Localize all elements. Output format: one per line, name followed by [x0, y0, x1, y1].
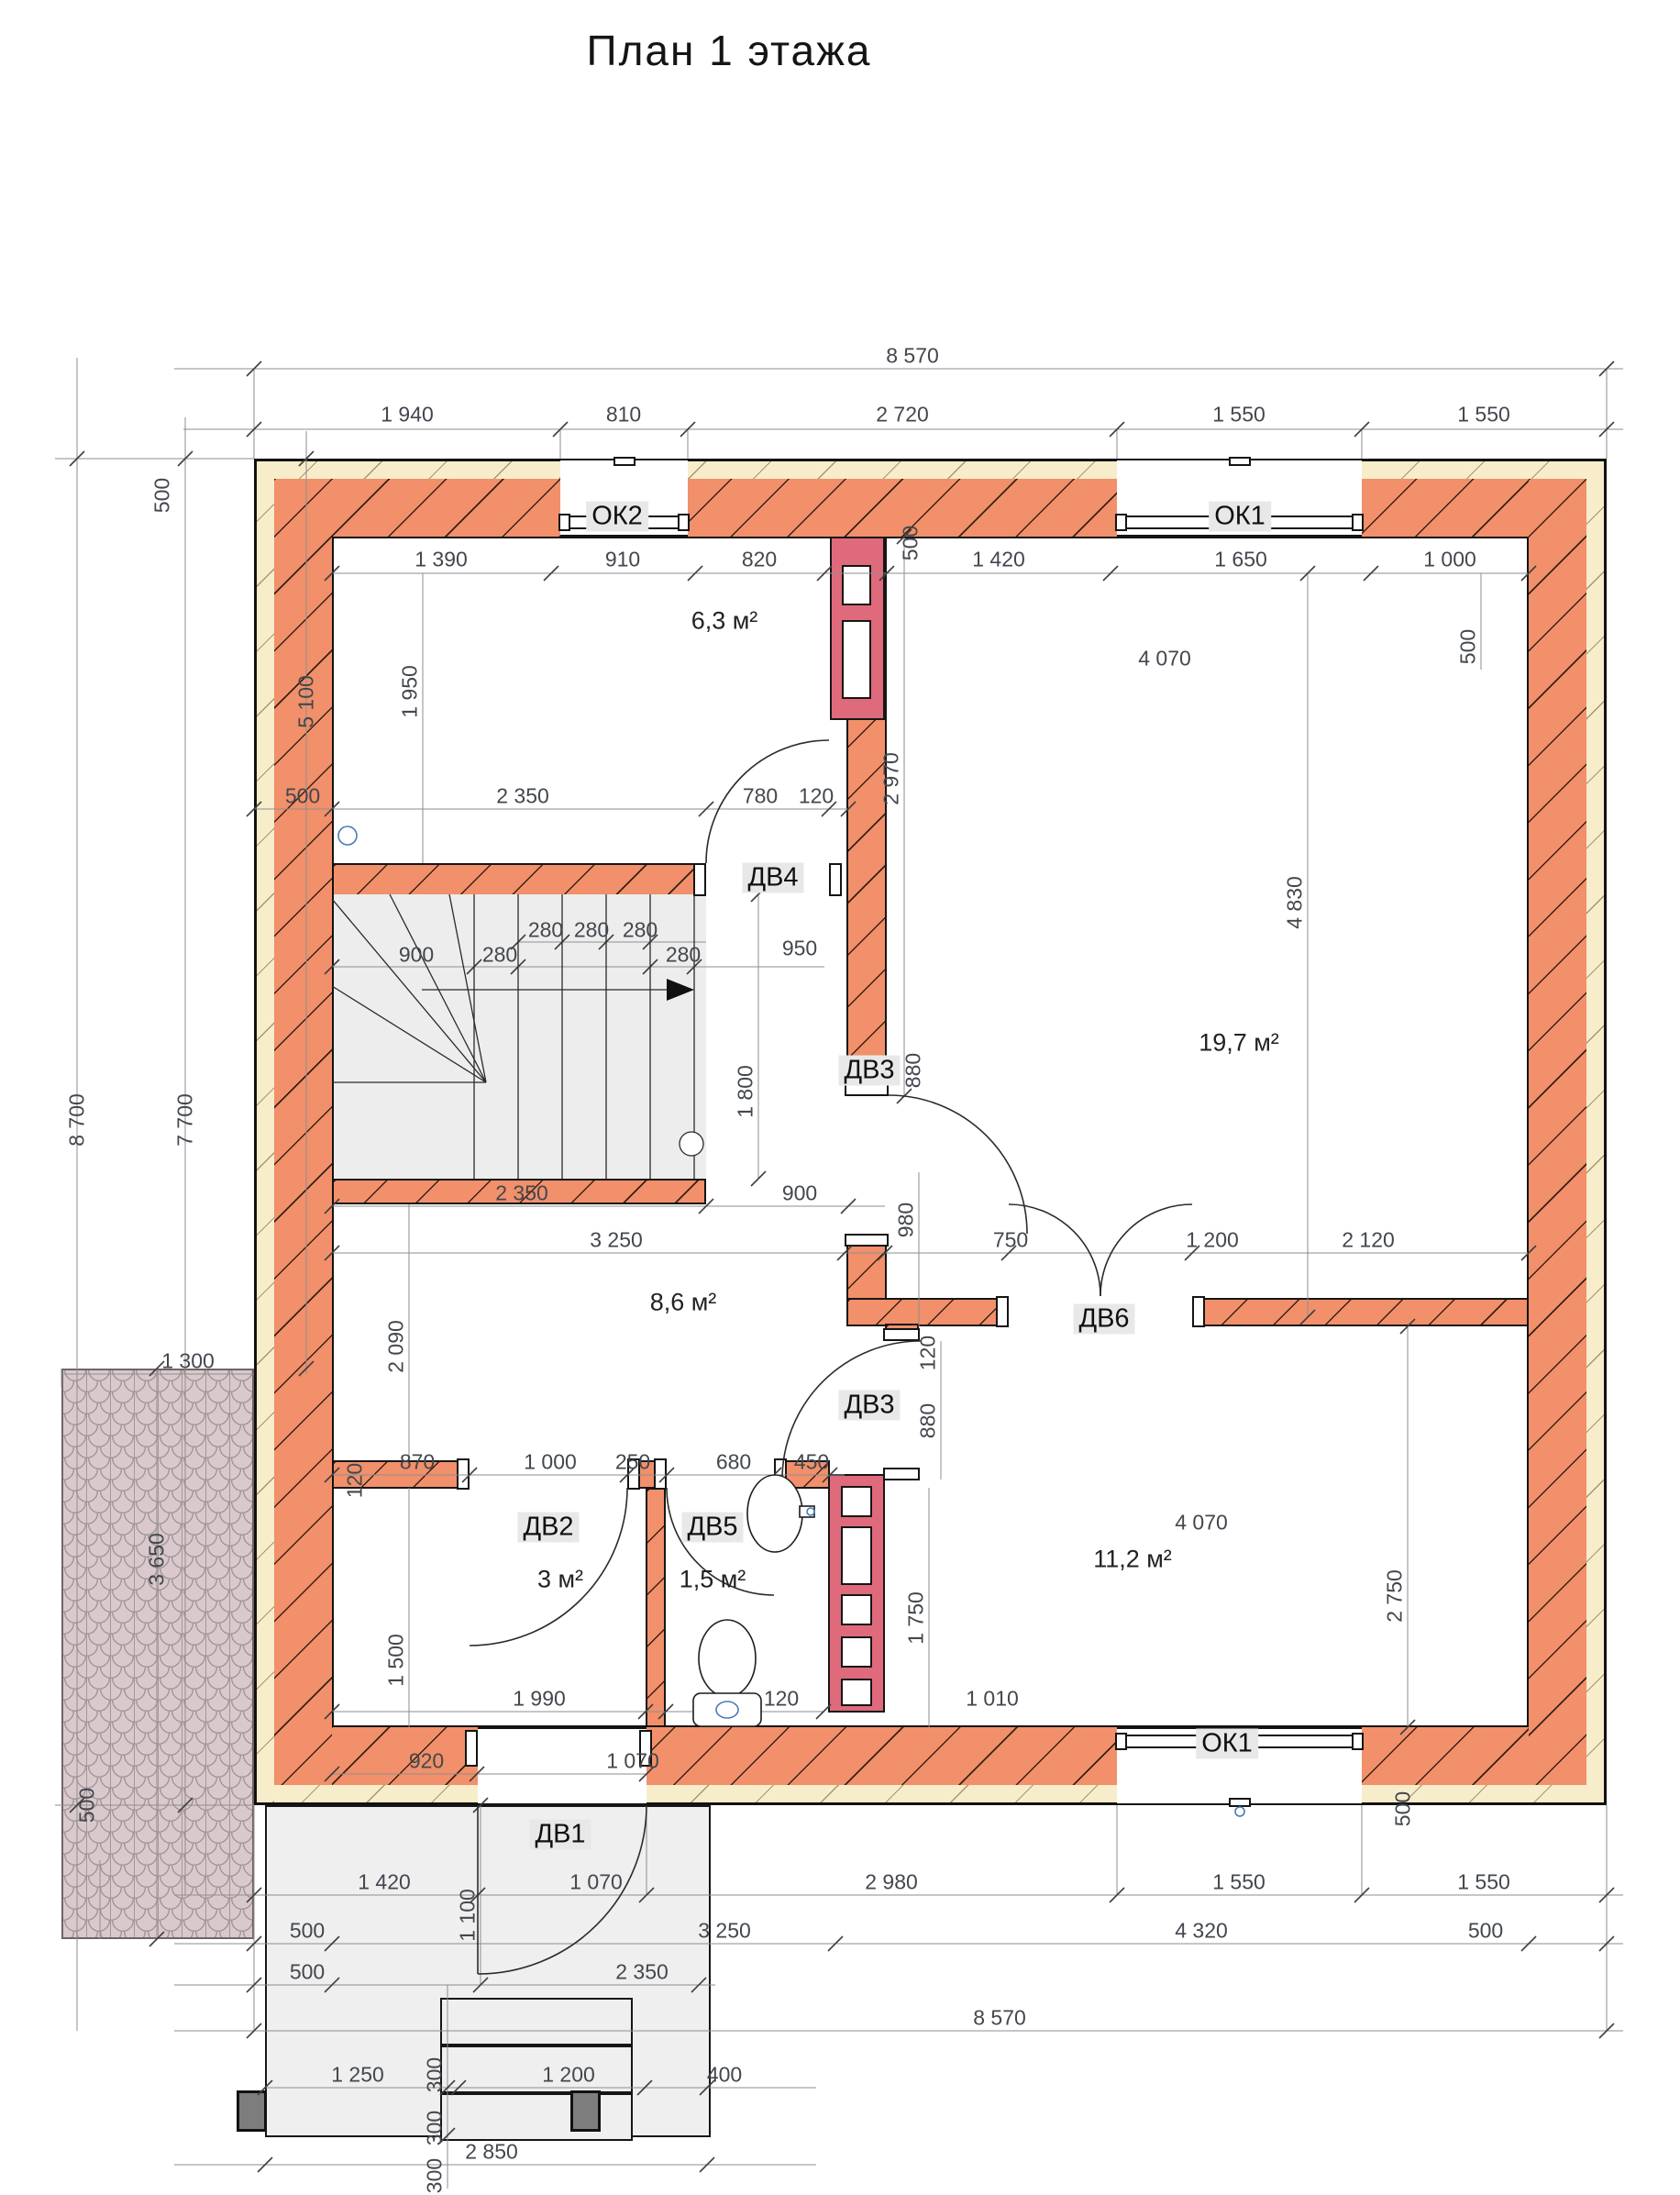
- dim: 280: [666, 945, 701, 966]
- dim: 1 940: [381, 405, 434, 426]
- dim: 910: [605, 549, 640, 571]
- dim: 280: [574, 920, 609, 941]
- dim: 5 100: [296, 675, 317, 728]
- dim: 2 720: [876, 405, 929, 426]
- dim: 280: [482, 945, 517, 966]
- window-label-ok2: ОК2: [586, 502, 648, 532]
- dim: 2 120: [1342, 1230, 1395, 1251]
- dim: 1 100: [458, 1889, 479, 1942]
- dim: 400: [707, 2065, 742, 2086]
- dim: 1 990: [513, 1689, 566, 1710]
- dim: 3 250: [590, 1230, 643, 1251]
- dim: 120: [345, 1463, 366, 1498]
- window-label-ok1-bottom: ОК1: [1196, 1729, 1258, 1759]
- dim: 4 830: [1285, 876, 1306, 929]
- dim: 1 750: [906, 1591, 927, 1645]
- room-label-mid-hall: 8,6 м²: [650, 1291, 717, 1315]
- dim: 2 750: [1385, 1569, 1406, 1623]
- dim: 2 350: [496, 786, 549, 807]
- dim: 1 550: [1457, 1872, 1510, 1893]
- room-label-bathroom: 1,5 м²: [680, 1568, 746, 1592]
- dim: 1 650: [1214, 549, 1267, 571]
- door-label-dv4: ДВ4: [742, 863, 803, 893]
- dim: 4 070: [1175, 1513, 1228, 1534]
- dim: 1 420: [358, 1872, 411, 1893]
- door-arc-dv6-right: [1100, 1204, 1192, 1296]
- dim: 120: [799, 786, 834, 807]
- dim: 810: [606, 405, 641, 426]
- dim: 1 390: [414, 549, 468, 571]
- dim: 1 000: [524, 1452, 577, 1473]
- dim: 980: [896, 1203, 917, 1237]
- dim: 1 550: [1457, 405, 1510, 426]
- dim: 3 250: [698, 1921, 751, 1942]
- dim: 870: [400, 1452, 435, 1473]
- dim: 820: [742, 549, 777, 571]
- room-label-entry: 3 м²: [537, 1568, 583, 1592]
- dim: 750: [993, 1230, 1028, 1251]
- dim: 2 850: [465, 2142, 518, 2163]
- dim: 2 970: [881, 752, 902, 805]
- sink-tap-dot: [807, 1508, 814, 1515]
- dim: 680: [716, 1452, 751, 1473]
- dim: 500: [290, 1921, 325, 1942]
- dim: 1 800: [735, 1065, 757, 1118]
- dim: 120: [764, 1689, 799, 1710]
- dim: 2 090: [386, 1320, 407, 1373]
- window-vent-dot: [1235, 1807, 1244, 1816]
- dim: 500: [1468, 1921, 1503, 1942]
- dim: 780: [743, 786, 778, 807]
- dim: 300: [425, 2158, 446, 2193]
- dim: 500: [285, 786, 320, 807]
- dim: 3 650: [147, 1533, 168, 1586]
- dim: 1 950: [400, 665, 421, 718]
- door-label-dv1: ДВ1: [529, 1820, 591, 1850]
- dim: 900: [399, 945, 434, 966]
- dim-overall-bottom: 8 570: [973, 2008, 1026, 2029]
- dim: 1 550: [1212, 1872, 1266, 1893]
- dim: 920: [409, 1751, 444, 1772]
- window-label-ok1-top: ОК1: [1209, 502, 1271, 532]
- floor-plan-canvas: План 1 этажа: [0, 0, 1680, 2195]
- dim: 250: [615, 1452, 650, 1473]
- linework-layer: [0, 0, 1680, 2195]
- dim-overall-top: 8 570: [886, 346, 939, 367]
- dim: 880: [918, 1403, 939, 1438]
- dim: 500: [77, 1788, 98, 1823]
- dim: 1 070: [606, 1751, 659, 1772]
- dim: 950: [782, 938, 817, 959]
- dim: 300: [425, 2111, 446, 2145]
- dim: 2 350: [495, 1183, 548, 1204]
- door-label-dv3-upper: ДВ3: [838, 1056, 900, 1086]
- dim: 500: [290, 1962, 325, 1983]
- dim: 280: [623, 920, 658, 941]
- dim: 2 980: [865, 1872, 918, 1893]
- dim: 1 200: [542, 2065, 595, 2086]
- dim: 500: [901, 526, 922, 560]
- dim: 900: [782, 1183, 817, 1204]
- dim: 280: [528, 920, 563, 941]
- dim: 500: [1458, 629, 1479, 664]
- dim: 300: [425, 2057, 446, 2092]
- dim: 1 550: [1212, 405, 1266, 426]
- dim: 8 700: [67, 1093, 88, 1147]
- room-label-top-hall: 6,3 м²: [691, 609, 758, 634]
- dim: 2 350: [615, 1962, 669, 1983]
- dimension-lines: [55, 358, 1623, 2189]
- dim: 500: [152, 478, 173, 513]
- page-title: План 1 этажа: [587, 26, 872, 75]
- dim: 1 500: [386, 1634, 407, 1687]
- dim: 1 250: [331, 2065, 384, 2086]
- stair-arrow-head: [667, 979, 694, 1001]
- dim: 1 070: [569, 1872, 623, 1893]
- door-label-dv6: ДВ6: [1073, 1304, 1134, 1335]
- door-label-dv5: ДВ5: [681, 1513, 743, 1543]
- room-label-living: 19,7 м²: [1199, 1031, 1279, 1056]
- room-label-bedroom: 11,2 м²: [1093, 1547, 1172, 1572]
- door-label-dv3-lower: ДВ3: [838, 1391, 900, 1421]
- toilet-bowl: [699, 1620, 756, 1697]
- dimension-ticks: [70, 361, 1614, 2172]
- dim: 500: [1393, 1791, 1414, 1826]
- dim: 1 010: [966, 1689, 1019, 1710]
- dim: 4 070: [1138, 649, 1191, 670]
- dim: 4 320: [1175, 1921, 1228, 1942]
- dim: 1 300: [161, 1351, 215, 1372]
- dim: 880: [903, 1053, 924, 1088]
- dim: 1 420: [972, 549, 1025, 571]
- riser-circle: [338, 826, 357, 845]
- dim: 120: [918, 1336, 939, 1370]
- dim: 1 200: [1186, 1230, 1239, 1251]
- dim: 7 700: [175, 1093, 196, 1147]
- sink-basin: [747, 1475, 802, 1552]
- toilet-flush: [716, 1702, 738, 1718]
- door-label-dv2: ДВ2: [517, 1513, 579, 1543]
- dim: 450: [794, 1452, 829, 1473]
- dim: 1 000: [1423, 549, 1476, 571]
